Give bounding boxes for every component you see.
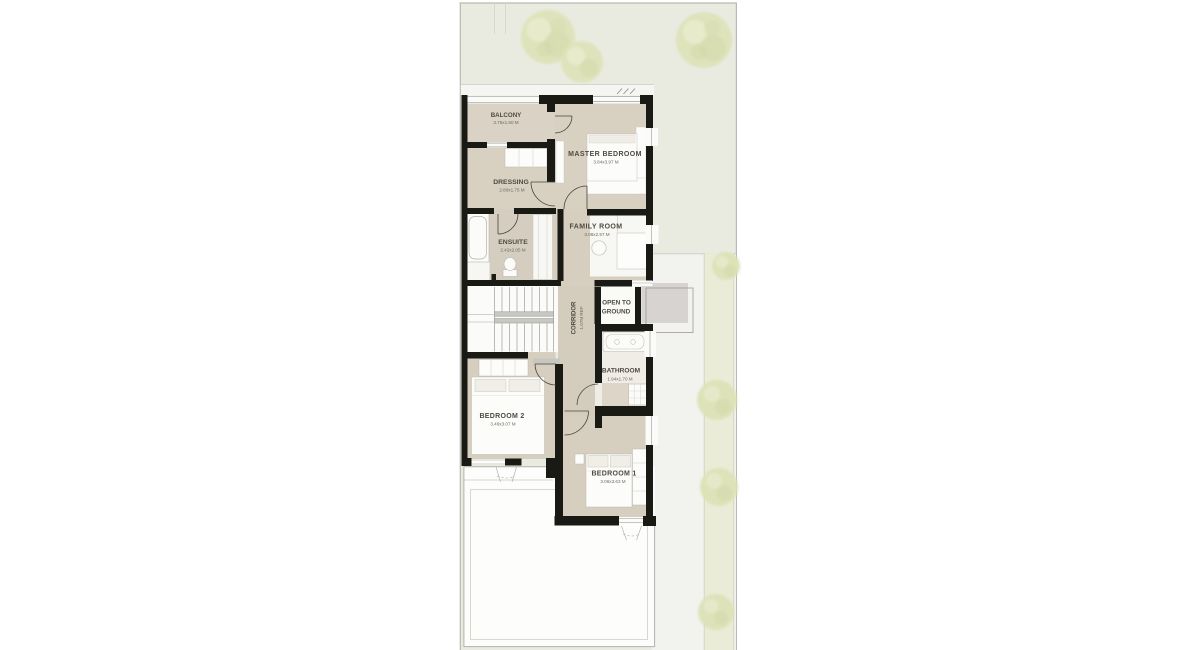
svg-text:FAMILY ROOM: FAMILY ROOM xyxy=(569,224,622,231)
svg-text:BEDROOM 1: BEDROOM 1 xyxy=(591,471,636,478)
svg-text:2.42x2.05 M: 2.42x2.05 M xyxy=(500,248,525,253)
svg-text:DRESSING: DRESSING xyxy=(493,179,529,186)
svg-text:3.08x2.97 M: 3.08x2.97 M xyxy=(584,232,609,237)
svg-text:2.80x1.75 M: 2.80x1.75 M xyxy=(499,188,524,193)
svg-text:ENSUITE: ENSUITE xyxy=(498,239,528,246)
svg-text:3.75x1.60 M: 3.75x1.60 M xyxy=(493,120,518,125)
svg-text:3.46x3.07 M: 3.46x3.07 M xyxy=(490,422,515,427)
svg-text:3.84x3.97 M: 3.84x3.97 M xyxy=(593,160,618,165)
svg-text:OPEN TO: OPEN TO xyxy=(602,300,631,307)
svg-text:GROUND: GROUND xyxy=(602,309,631,316)
svg-text:1.94x1.70 M: 1.94x1.70 M xyxy=(607,377,632,382)
svg-text:1.07M REF: 1.07M REF xyxy=(579,306,584,329)
svg-text:BEDROOM 2: BEDROOM 2 xyxy=(479,413,524,420)
svg-text:3.06x3.63 M: 3.06x3.63 M xyxy=(600,479,625,484)
svg-text:MASTER BEDROOM: MASTER BEDROOM xyxy=(568,151,642,158)
svg-text:CORRIDOR: CORRIDOR xyxy=(572,301,578,334)
svg-text:BALCONY: BALCONY xyxy=(491,112,522,119)
svg-text:BATHROOM: BATHROOM xyxy=(602,368,641,375)
